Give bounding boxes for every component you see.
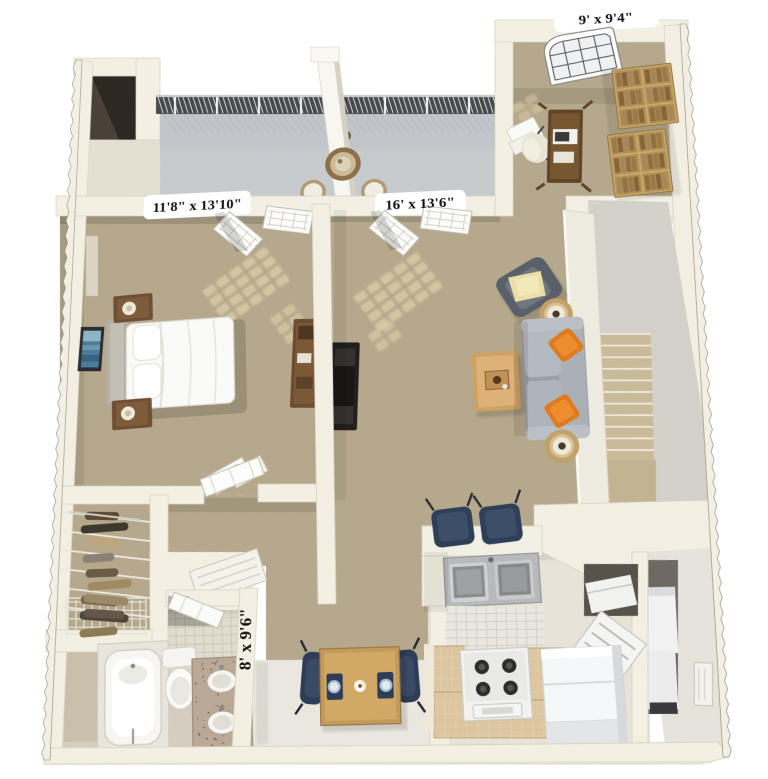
svg-text:8' x 9'6": 8' x 9'6": [236, 608, 256, 670]
svg-text:16' x 13'6": 16' x 13'6": [385, 194, 455, 213]
svg-text:9' x 9'4": 9' x 9'4": [578, 9, 633, 27]
